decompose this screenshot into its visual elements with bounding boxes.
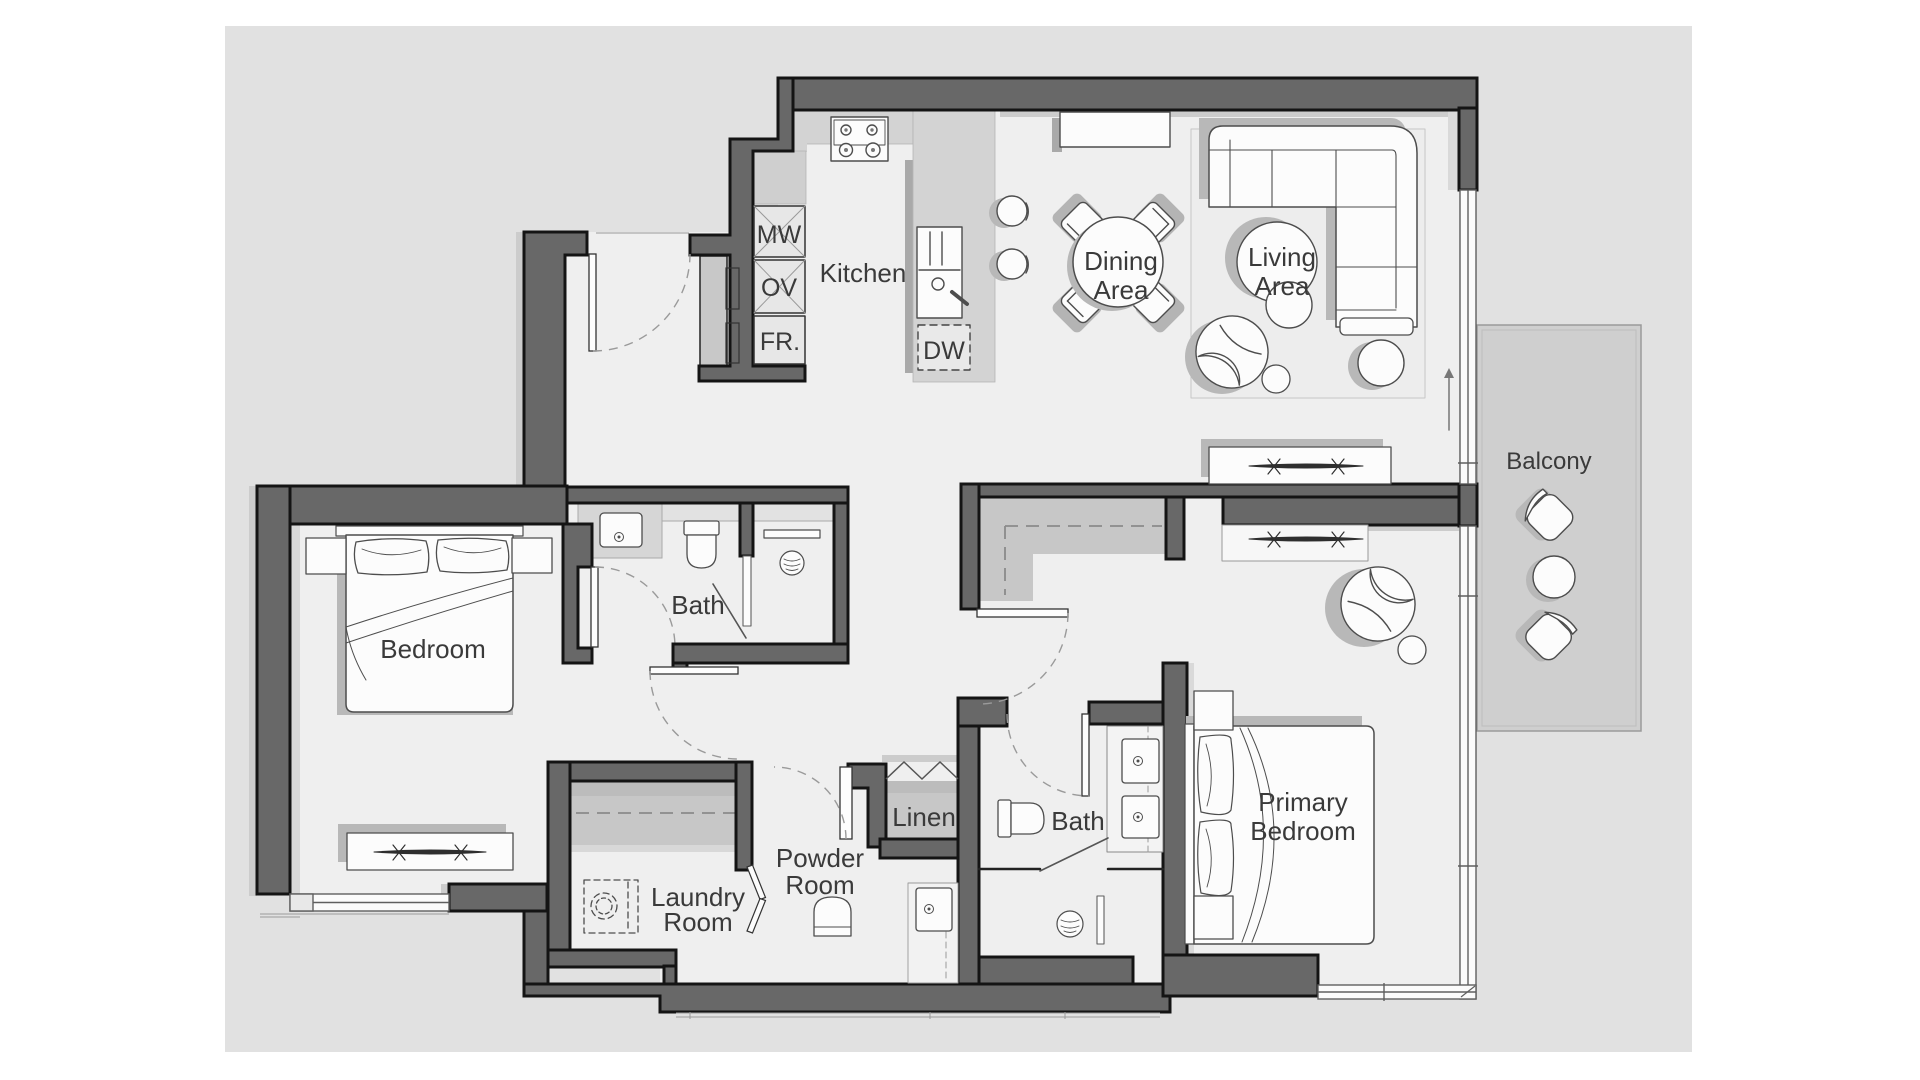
svg-text:Primary: Primary (1258, 787, 1348, 817)
svg-text:Room: Room (785, 870, 854, 900)
svg-text:Balcony: Balcony (1506, 448, 1591, 475)
svg-text:DW: DW (923, 337, 965, 365)
svg-text:OV: OV (761, 274, 797, 302)
svg-text:Kitchen: Kitchen (820, 258, 907, 288)
svg-text:Bedroom: Bedroom (1250, 816, 1356, 846)
svg-text:FR.: FR. (760, 328, 800, 356)
svg-text:Area: Area (1094, 275, 1149, 305)
svg-text:Living: Living (1248, 242, 1316, 272)
svg-text:Room: Room (663, 907, 732, 937)
svg-text:Bedroom: Bedroom (380, 634, 486, 664)
svg-text:Powder: Powder (776, 843, 864, 873)
svg-text:Linen: Linen (892, 802, 956, 832)
svg-text:Bath: Bath (671, 590, 725, 620)
svg-text:MW: MW (757, 221, 802, 249)
svg-text:Area: Area (1255, 271, 1310, 301)
svg-text:Bath: Bath (1051, 806, 1105, 836)
svg-text:Dining: Dining (1084, 246, 1158, 276)
